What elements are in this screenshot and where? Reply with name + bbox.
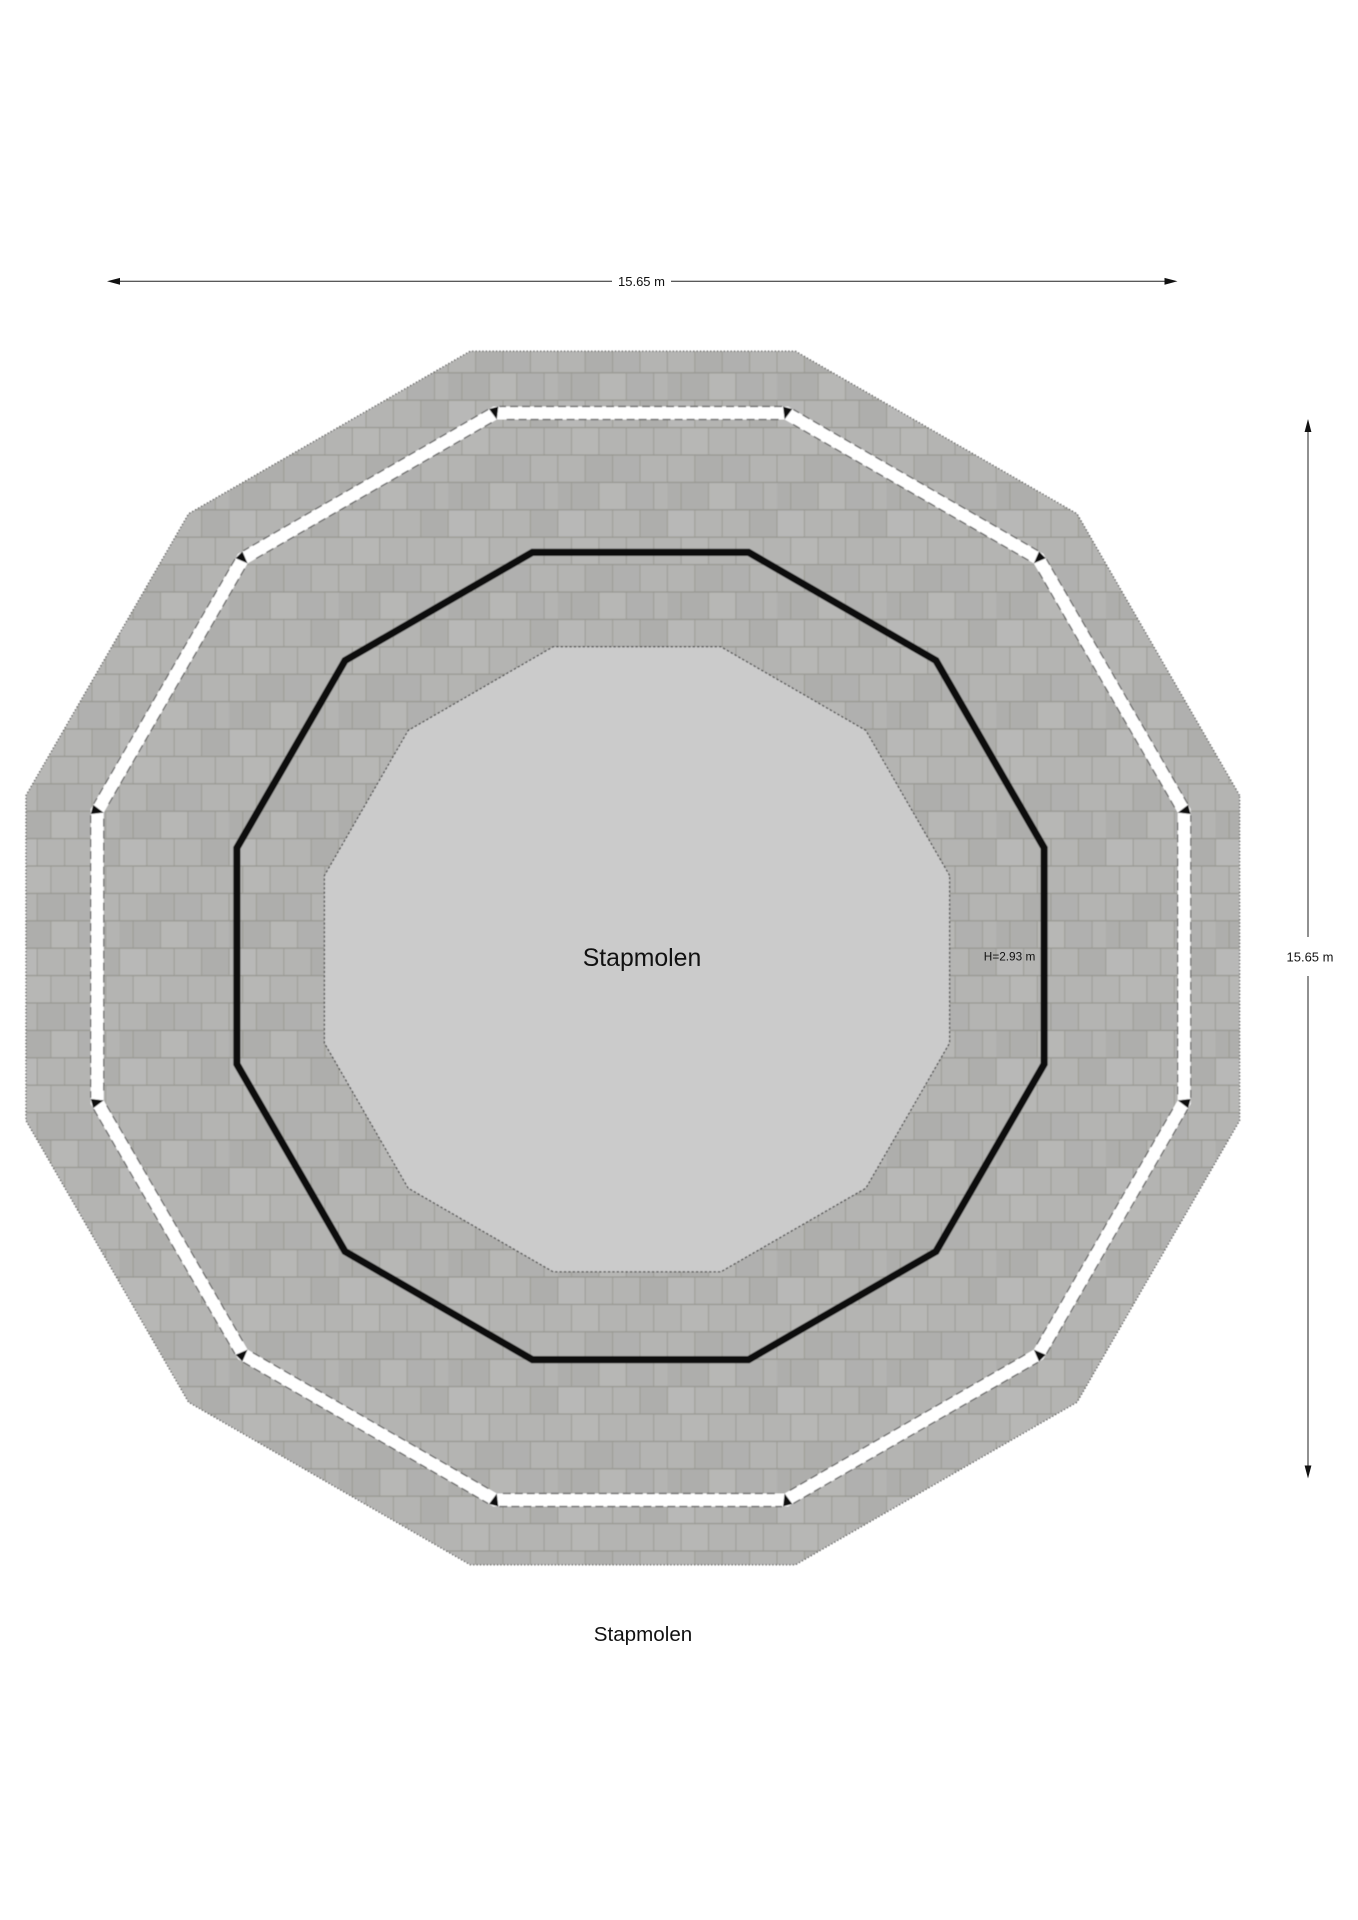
svg-text:15.65 m: 15.65 m [1287, 950, 1334, 965]
svg-text:15.65 m: 15.65 m [618, 274, 665, 289]
svg-text:Stapmolen: Stapmolen [594, 1623, 692, 1646]
svg-text:Stapmolen: Stapmolen [583, 945, 702, 972]
svg-text:H=2.93 m: H=2.93 m [984, 950, 1036, 964]
